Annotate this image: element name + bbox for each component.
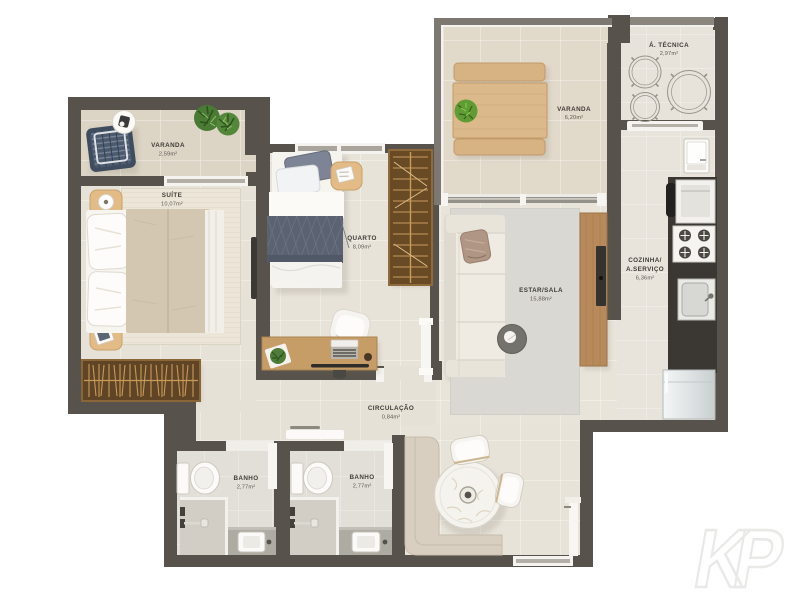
svg-text:8,09m²: 8,09m² [353,245,372,251]
svg-text:A.SERVIÇO: A.SERVIÇO [626,266,664,273]
svg-text:VARANDA: VARANDA [557,106,591,113]
svg-text:2,97m²: 2,97m² [660,51,679,57]
svg-text:6,36m²: 6,36m² [636,276,655,282]
svg-text:6,20m²: 6,20m² [565,115,584,121]
svg-text:COZINHA/: COZINHA/ [628,257,662,264]
svg-text:QUARTO: QUARTO [347,235,377,242]
svg-text:2,77m²: 2,77m² [237,485,256,491]
svg-text:10,07m²: 10,07m² [161,202,183,208]
svg-text:ESTAR/SALA: ESTAR/SALA [519,287,563,294]
svg-text:2,77m²: 2,77m² [353,484,372,490]
svg-text:2,59m²: 2,59m² [159,152,178,158]
svg-text:BANHO: BANHO [233,475,258,482]
svg-text:BANHO: BANHO [349,474,374,481]
svg-text:0,84m²: 0,84m² [382,415,401,421]
svg-text:15,88m²: 15,88m² [530,297,552,303]
svg-text:VARANDA: VARANDA [151,142,185,149]
